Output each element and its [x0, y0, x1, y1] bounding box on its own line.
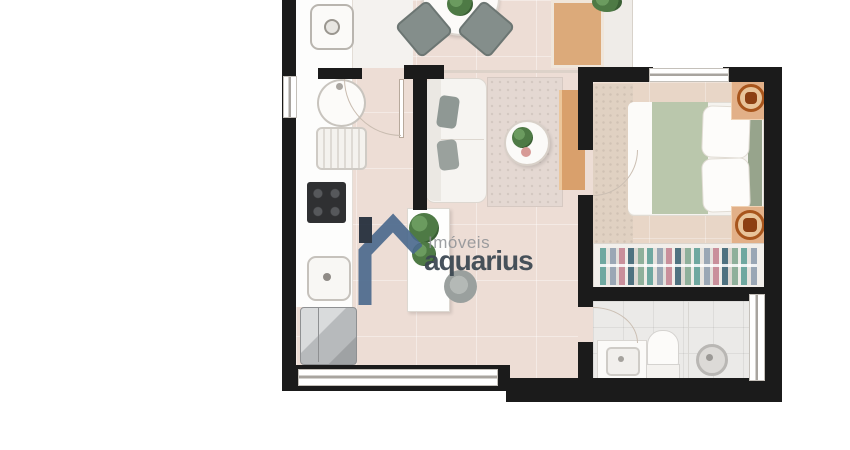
- nightstand-lamp-icon: [737, 84, 765, 112]
- aquarius-house-logo-icon: [350, 210, 422, 308]
- sofa-pillow-2-icon: [436, 139, 460, 171]
- wall-bedroom-left-c: [578, 342, 593, 382]
- floor-transition-line: [444, 70, 578, 73]
- bed-pillow-2-icon: [701, 157, 751, 213]
- wall-divider-vertical: [413, 79, 427, 210]
- wall-bedroom-top-right: [723, 67, 782, 82]
- bed-blanket: [652, 102, 708, 214]
- fridge-split-line: [318, 308, 319, 362]
- shower-head-icon: [696, 344, 728, 376]
- wardrobe-rod: [600, 264, 757, 267]
- floor-plan: Imóveis aquarius: [0, 0, 850, 450]
- sofa-backrest: [425, 78, 441, 201]
- window-service-left-icon: [283, 76, 297, 118]
- window-bathroom-right-icon: [749, 294, 765, 381]
- vanity-faucet: [618, 356, 624, 362]
- wall-bedroom-left-a: [578, 79, 593, 150]
- kitchen-faucet: [323, 273, 331, 281]
- cooktop-icon: [307, 182, 346, 223]
- bathroom-doorway-floor: [578, 307, 593, 342]
- window-living-bottom-icon: [298, 369, 498, 386]
- watermark-brand-line2: aquarius: [424, 245, 533, 277]
- wall-left: [282, 0, 296, 391]
- wall-right: [764, 67, 782, 402]
- laundry-faucet: [336, 83, 343, 90]
- wall-service-stub: [318, 68, 362, 79]
- wall-divider-t: [404, 65, 444, 79]
- coffee-table-plant-icon: [512, 127, 533, 148]
- window-bedroom-top-icon: [649, 68, 729, 82]
- fridge-icon: [300, 307, 357, 365]
- tv-console-icon: [551, 0, 604, 68]
- shower-glass-line: [688, 302, 689, 378]
- washing-machine-door: [324, 19, 340, 35]
- vanity-basin: [606, 347, 640, 376]
- dish-rack-icon: [316, 127, 367, 170]
- nightstand-lamp-2-icon: [735, 210, 765, 240]
- wall-bottom-right: [506, 378, 782, 402]
- coffee-table-decor: [521, 147, 531, 157]
- wall-bedroom-left-b: [578, 195, 593, 307]
- shower-head-center: [706, 354, 713, 361]
